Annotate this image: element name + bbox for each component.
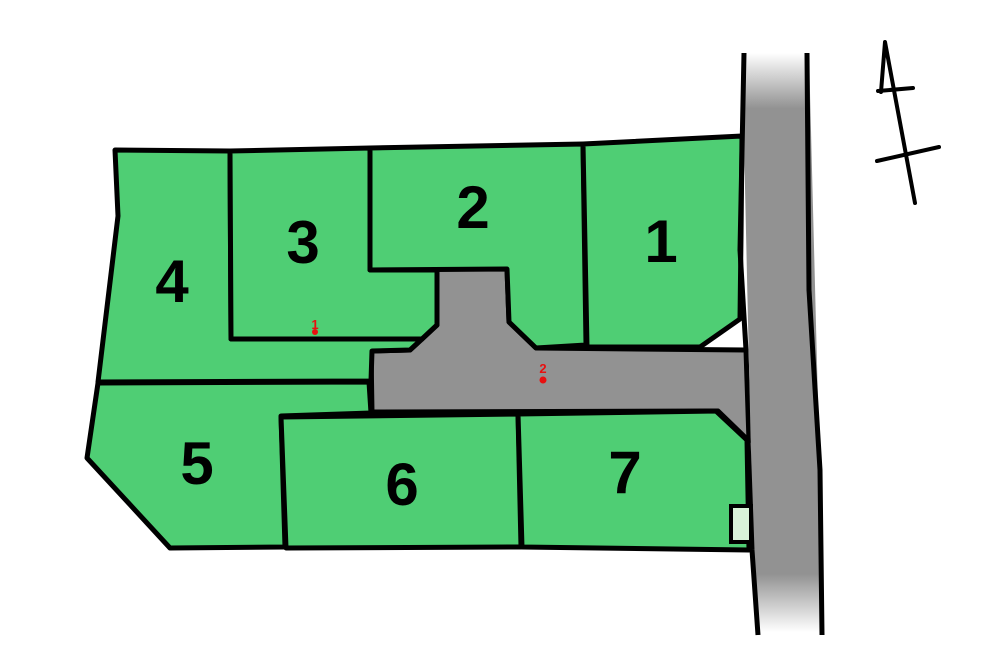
road-marker-1: 1 <box>311 317 318 335</box>
main-road-left-edge-upper <box>740 53 746 350</box>
site-plan-canvas: 4 3 2 1 5 6 7 1 2 <box>0 0 1000 665</box>
plot-6-label: 6 <box>385 451 418 518</box>
plot-7: 7 <box>518 411 749 550</box>
plot-3-label: 3 <box>286 209 319 276</box>
plot-1: 1 <box>583 136 742 347</box>
plot-4-label: 4 <box>155 248 189 315</box>
road-marker-1-dot <box>312 329 318 335</box>
road-marker-2-label: 2 <box>539 361 546 376</box>
plot-7-outline-box <box>731 506 751 542</box>
plot-2-label: 2 <box>456 174 489 241</box>
road-marker-2-dot <box>540 377 547 384</box>
north-arrow-shaft <box>881 42 915 203</box>
north-arrow-icon <box>877 42 939 203</box>
plot-1-label: 1 <box>644 208 677 275</box>
plot-7-label: 7 <box>608 439 641 506</box>
road-marker-2: 2 <box>539 361 546 384</box>
plot-5-label: 5 <box>180 430 213 497</box>
plot-6: 6 <box>281 414 521 548</box>
